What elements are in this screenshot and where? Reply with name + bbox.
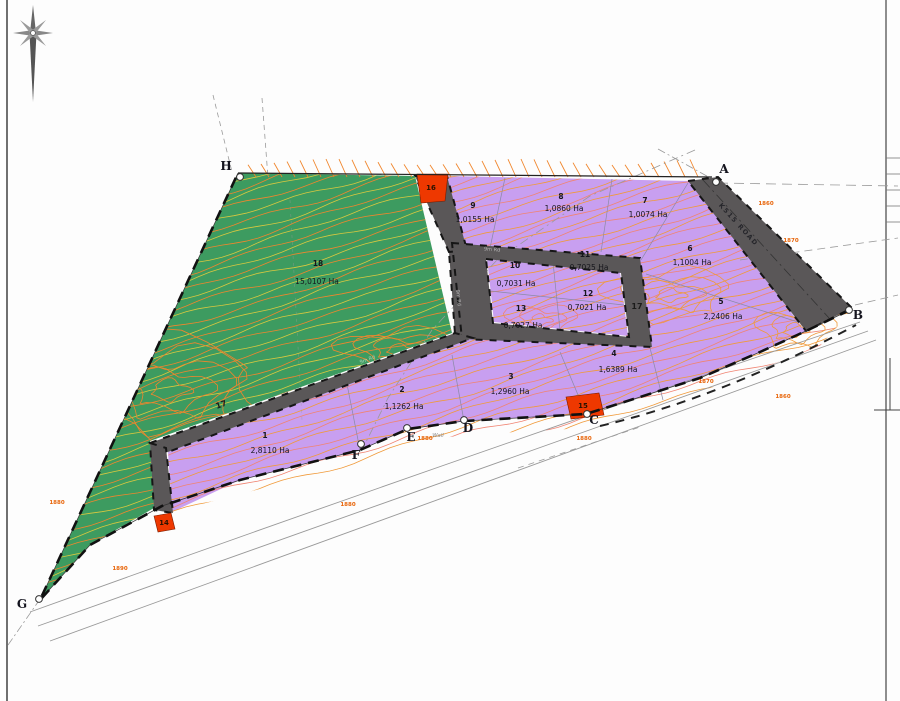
boundary-point-letter: C	[589, 413, 599, 427]
contour-tick	[534, 159, 542, 177]
parcel-area: 2,8110 Ha	[251, 446, 290, 455]
contour-line	[0, 516, 900, 701]
contour-line	[0, 590, 900, 701]
parcel-area: 0,7021 Ha	[568, 303, 607, 312]
contour-line	[0, 578, 900, 701]
parcel-number: 13	[516, 304, 526, 313]
boundary-point-letter: H	[220, 159, 231, 173]
contour-tick	[638, 164, 646, 177]
contour-line	[0, 630, 900, 701]
contour-ticks-top-boundary	[248, 159, 698, 177]
contour-line	[0, 0, 900, 156]
contour-line	[0, 638, 900, 701]
contour-line	[0, 651, 900, 701]
contour-elevation-label: 1880	[576, 436, 591, 442]
parcel-area: 1,1262 Ha	[385, 402, 424, 411]
parcel-number: 10	[510, 261, 520, 270]
parcel-number: 3	[508, 372, 513, 381]
parcel-number: 18	[313, 259, 323, 268]
boundary-point-circle	[358, 441, 365, 448]
red-marker-number: 16	[426, 184, 436, 192]
contour-line	[0, 0, 900, 193]
parcel-area: 0,7025 Ha	[570, 263, 609, 272]
contour-line	[0, 505, 900, 701]
contour-tick	[560, 162, 568, 178]
contour-line	[0, 583, 900, 701]
contour-line	[0, 613, 900, 701]
contour-tick	[586, 164, 594, 177]
contour-elevation-label: 1860	[775, 394, 790, 400]
parcel-number: 1	[262, 431, 267, 440]
contour-line	[0, 642, 900, 701]
parcel-area: 15,0107 Ha	[295, 277, 339, 286]
contour-line	[0, 618, 900, 701]
title-block-ticks	[886, 158, 900, 222]
parcel-area: 1,0155 Ha	[456, 215, 495, 224]
contour-line	[0, 501, 900, 701]
contour-line	[0, 638, 900, 701]
survey-plan-sheet: 12,8110 Ha21,1262 Ha31,2960 Ha41,6389 Ha…	[0, 0, 900, 701]
contour-elevation-label: 1890	[112, 566, 127, 572]
road-width-label: 9m Rd	[484, 246, 501, 253]
contour-line	[0, 0, 900, 168]
contour-line	[0, 560, 900, 701]
parcel-area: 1,2960 Ha	[491, 387, 530, 396]
parcel-number: 11	[580, 250, 590, 259]
contour-line	[0, 0, 900, 179]
site-plan-drawing: 12,8110 Ha21,1262 Ha31,2960 Ha41,6389 Ha…	[0, 0, 900, 701]
contour-line	[0, 505, 900, 701]
parcel-number: 9	[470, 201, 475, 210]
contour-line	[0, 0, 900, 179]
contour-line	[0, 590, 900, 701]
contour-tick	[677, 160, 685, 177]
contour-tick	[573, 163, 581, 177]
contour-tick	[404, 164, 412, 177]
contour-tick	[391, 163, 399, 177]
contour-line	[0, 516, 900, 701]
contour-elevation-label: 1880	[417, 436, 432, 442]
contour-line	[0, 613, 900, 701]
parcel-number: 8	[558, 192, 563, 201]
contour-line	[0, 501, 900, 701]
red-marker-number: 15	[578, 402, 588, 410]
road-parcel-number: 17	[631, 302, 642, 311]
contour-line	[0, 0, 900, 204]
contour-tick	[547, 160, 555, 177]
contour-line	[0, 567, 900, 701]
contour-elevation-label: 1880	[340, 502, 355, 508]
parcel-area: 1,6389 Ha	[599, 365, 638, 374]
boundary-point-circle	[713, 179, 720, 186]
contour-line	[0, 526, 900, 701]
contour-line	[0, 583, 900, 701]
contour-line	[0, 494, 900, 701]
contour-line	[0, 662, 900, 701]
red-marker-number: 14	[159, 519, 169, 527]
contour-line	[0, 0, 900, 204]
parcel-area: 2,2406 Ha	[704, 312, 743, 321]
contour-tick	[625, 165, 633, 177]
parcel-area: 0,7027 Ha	[504, 321, 543, 330]
boundary-point-letter: B	[853, 308, 863, 322]
contour-line	[0, 0, 900, 168]
contour-elevation-label: 1880	[49, 500, 64, 506]
parcel-number: 12	[583, 289, 593, 298]
contour-line	[0, 662, 900, 701]
contour-line	[0, 642, 900, 701]
boundary-point-H: H	[220, 159, 243, 180]
parcel-number: 6	[687, 244, 692, 253]
contour-line	[0, 494, 900, 701]
annotation-label: Wall	[432, 433, 444, 439]
contour-line	[0, 532, 900, 701]
parcel-number: 5	[718, 297, 723, 306]
contour-line	[0, 0, 900, 193]
contour-tick	[599, 165, 607, 177]
boundary-point-letter: F	[352, 448, 361, 462]
contour-line	[0, 603, 900, 701]
boundary-point-letter: G	[17, 597, 27, 611]
contour-tick	[690, 160, 698, 178]
contour-line	[0, 555, 900, 701]
contour-line	[0, 526, 900, 701]
contour-line	[0, 567, 900, 701]
contour-tick	[664, 162, 672, 177]
contour-line	[0, 0, 900, 184]
contour-tick	[612, 165, 620, 177]
parcel-number: 2	[399, 385, 404, 394]
boundary-point-letter: A	[718, 162, 729, 176]
contour-tick	[508, 159, 516, 177]
boundary-point-circle	[846, 307, 853, 314]
boundary-point-circle	[36, 596, 43, 603]
boundary-point-B: B	[846, 307, 863, 322]
contour-line	[0, 630, 900, 701]
contour-line	[0, 555, 900, 701]
contour-line	[0, 532, 900, 701]
contour-line	[0, 543, 900, 701]
contour-line	[0, 618, 900, 701]
contour-line	[0, 560, 900, 701]
contour-tick	[521, 159, 529, 177]
contour-line	[0, 651, 900, 701]
contour-line	[0, 0, 900, 184]
boundary-point-circle	[237, 174, 244, 181]
contour-line	[0, 0, 900, 156]
parcel-area: 1,0860 Ha	[545, 204, 584, 213]
parcel-area: 0,7031 Ha	[497, 279, 536, 288]
contour-line	[0, 543, 900, 701]
boundary-point-letter: D	[463, 421, 473, 435]
parcel-area: 1,0074 Ha	[629, 210, 668, 219]
parcel-number: 7	[642, 196, 647, 205]
boundary-point-C: C	[584, 411, 599, 427]
contour-elevation-label: 1860	[758, 201, 773, 207]
parcel-area: 1,1004 Ha	[673, 258, 712, 267]
contour-elevation-label: 1870	[698, 379, 713, 385]
parcel-number: 4	[611, 349, 616, 358]
contour-tick	[651, 163, 659, 177]
contour-tick	[495, 160, 503, 177]
boundary-point-letter: E	[406, 430, 415, 444]
contour-line	[0, 578, 900, 701]
north-star-icon	[13, 5, 53, 102]
contour-elevation-label: 1870	[783, 238, 798, 244]
contour-line	[0, 603, 900, 701]
